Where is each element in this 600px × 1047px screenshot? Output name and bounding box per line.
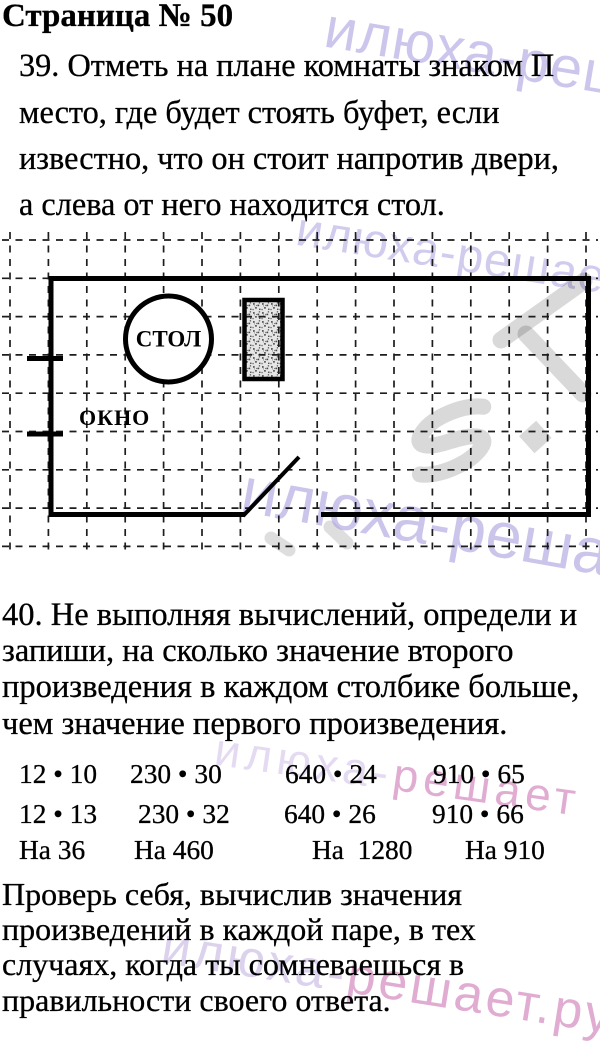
svg-text:ОКНО: ОКНО <box>79 405 150 430</box>
svg-text:СТОЛ: СТОЛ <box>136 327 202 352</box>
